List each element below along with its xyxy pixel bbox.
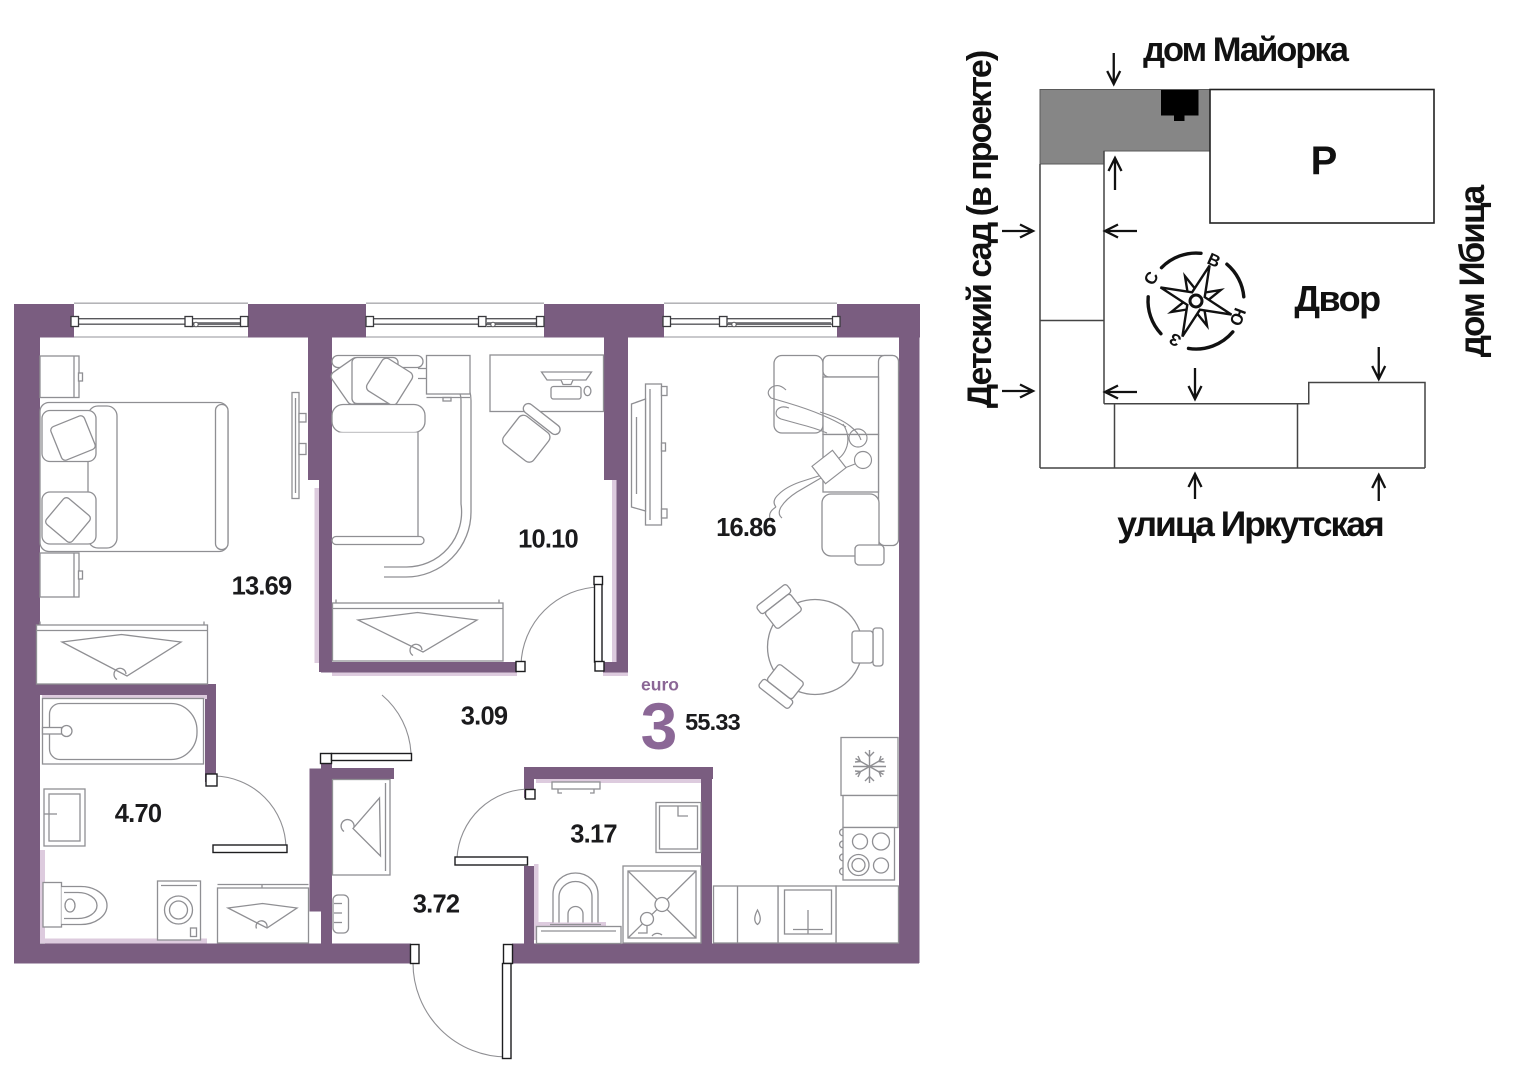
svg-text:Ю: Ю (1226, 305, 1250, 328)
svg-text:3.72: 3.72 (413, 891, 460, 919)
svg-text:3: 3 (641, 689, 678, 763)
svg-text:10.10: 10.10 (518, 526, 578, 554)
svg-text:3.09: 3.09 (461, 703, 508, 731)
svg-text:3.17: 3.17 (570, 821, 617, 849)
svg-text:Двор: Двор (1294, 278, 1380, 319)
svg-text:дом Ибица: дом Ибица (1453, 184, 1492, 357)
svg-text:55.33: 55.33 (685, 709, 741, 735)
svg-text:Р: Р (1311, 139, 1338, 183)
svg-text:дом Майорка: дом Майорка (1143, 31, 1350, 69)
svg-text:улица Иркутская: улица Иркутская (1117, 504, 1383, 544)
svg-text:Детский сад (в проекте): Детский сад (в проекте) (961, 51, 999, 408)
svg-text:З: З (1166, 329, 1184, 351)
svg-text:С: С (1140, 268, 1163, 288)
svg-text:13.69: 13.69 (232, 573, 292, 601)
svg-text:4.70: 4.70 (115, 800, 162, 828)
svg-text:16.86: 16.86 (716, 514, 776, 542)
